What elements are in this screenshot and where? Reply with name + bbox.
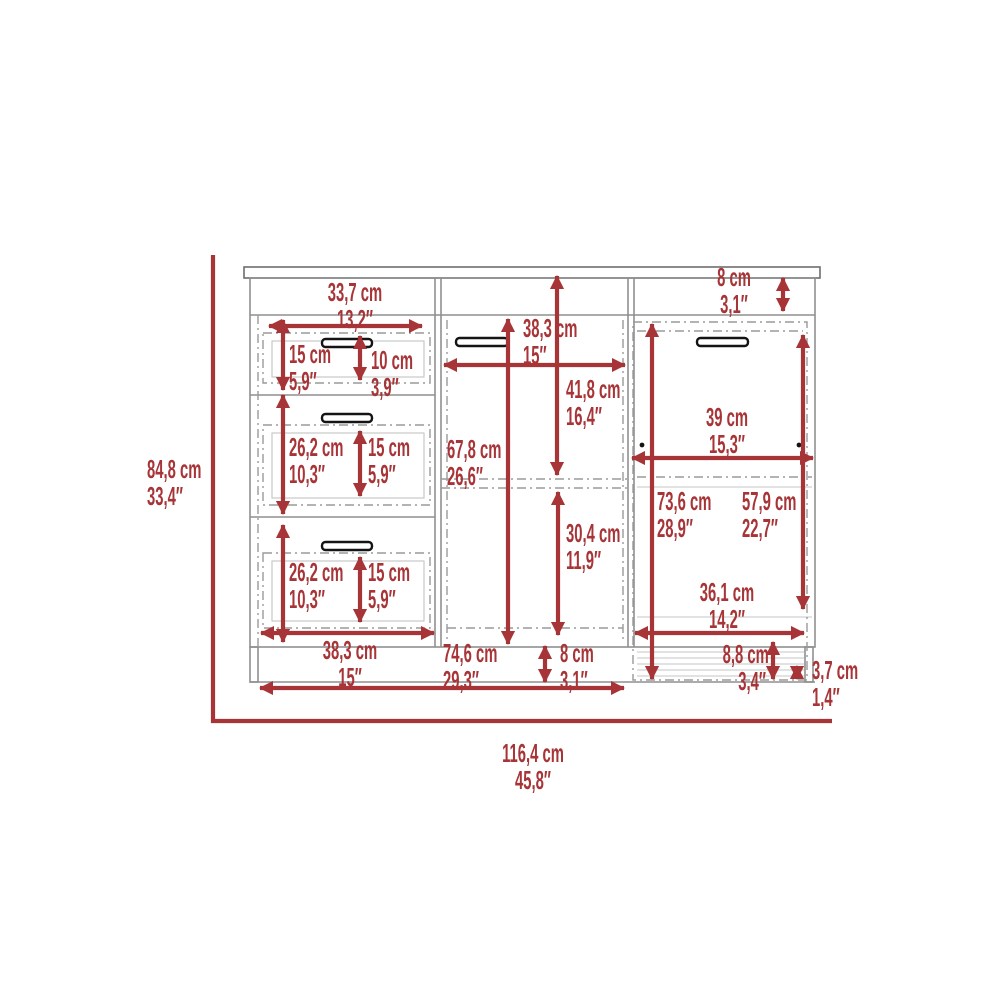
dim-label-leg-height: 3,7 cm1,4″ — [812, 657, 858, 712]
dim-label-right-door-width: 39 cm15,3″ — [693, 404, 761, 459]
dim-label-overall-height: 84,8 cm33,4″ — [147, 456, 201, 511]
dim-label-right-inner-height: 57,9 cm22,7″ — [742, 488, 796, 543]
dim-label-drawer2-front: 15 cm5,9″ — [368, 434, 410, 489]
dim-label-overall-width: 116,4 cm45,8″ — [487, 740, 578, 795]
drawer-handle-icon — [322, 414, 372, 422]
dim-label-bottom-span: 74,6 cm29,3″ — [443, 640, 497, 695]
dim-label-drawer3-front: 15 cm5,9″ — [368, 559, 410, 614]
door-handle-icon — [456, 338, 508, 346]
dim-label-right-inner-width: 36,1 cm14,2″ — [693, 579, 761, 634]
door-pin-dot — [640, 443, 645, 448]
dim-label-left-column-width: 38,3 cm15″ — [310, 637, 390, 692]
dim-label-right-door-height: 73,6 cm28,9″ — [657, 488, 711, 543]
drawer-handle-icon — [322, 542, 372, 550]
dimension-diagram-canvas: 84,8 cm33,4″ 116,4 cm45,8″ 33,7 cm13,2″ … — [0, 0, 1000, 1000]
door-pin-dot — [797, 443, 802, 448]
door-handle-icon — [697, 338, 748, 346]
dim-label-top-drawer-width: 33,7 cm13,2″ — [315, 279, 395, 334]
dim-label-drawer1-front: 10 cm3,9″ — [371, 347, 413, 402]
dim-label-drawer3-height: 26,2 cm10,3″ — [289, 559, 343, 614]
dim-label-base-height-right: 8,8 cm3,4″ — [723, 641, 766, 696]
dim-label-drawer2-height: 26,2 cm10,3″ — [289, 434, 343, 489]
dim-label-drawer1-opening: 15 cm5,9″ — [289, 341, 331, 396]
dim-label-upper-cavity-height: 41,8 cm16,4″ — [566, 376, 620, 431]
dim-label-middle-door-height: 67,8 cm26,6″ — [447, 436, 501, 491]
left-leg — [250, 647, 258, 682]
dim-label-middle-column-width: 38,3 cm15″ — [523, 315, 577, 370]
dim-label-base-height-middle: 8 cm3,1″ — [560, 640, 594, 695]
divider-left — [435, 278, 441, 647]
dim-label-lower-cavity-height: 30,4 cm11,9″ — [566, 520, 620, 575]
dim-label-top-rail-height: 8 cm3,1″ — [711, 264, 757, 319]
